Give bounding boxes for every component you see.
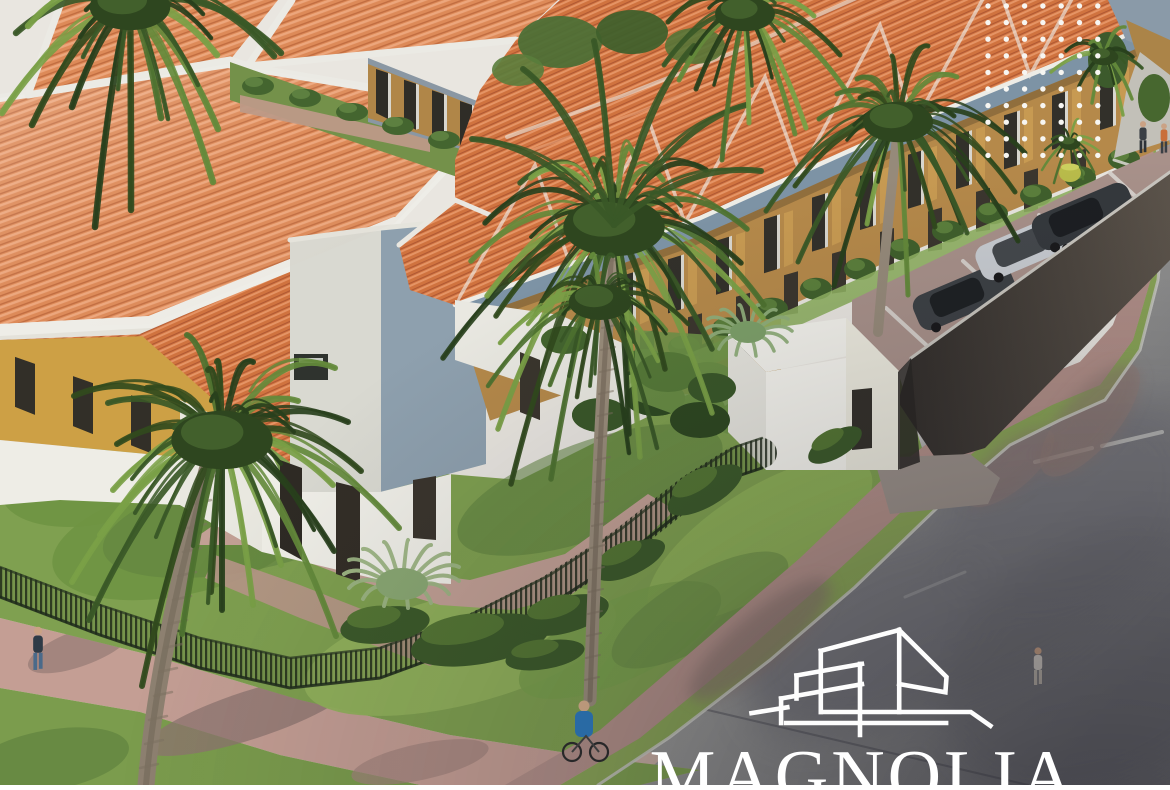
svg-text:MAGNOLIA: MAGNOLIA [650, 736, 1077, 785]
